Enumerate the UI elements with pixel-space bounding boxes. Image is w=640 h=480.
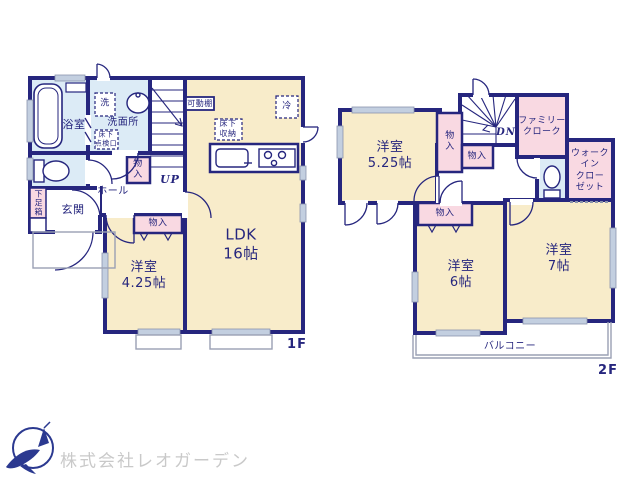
feature-label-movable-shelf: 可動棚 [187, 99, 213, 109]
room-label-bedroom-525: 洋室 5.25帖 [368, 140, 412, 173]
room-label-entrance: 玄関 [62, 203, 85, 217]
feature-label-laundry: 洗 [100, 98, 110, 109]
feature-label-fridge: 冷 [282, 101, 292, 112]
washbasin-icon [127, 93, 149, 113]
room-label-walk-in-closet: ウォーク イン クロー ゼット [571, 149, 609, 194]
floor1-label: 1F [287, 337, 307, 353]
room-label-hall: ホール [97, 186, 129, 199]
toilet-1f-icon [34, 160, 69, 182]
closet-label-hall-1f: 物 入 [133, 159, 143, 182]
closet-label-bedroom-1f: 物入 [148, 218, 167, 229]
stairs-up-label: UP [160, 173, 180, 187]
sink-icon [216, 149, 248, 167]
toilet-2f-icon [544, 166, 560, 198]
room-label-washroom: 洗面所 [107, 117, 139, 130]
closet-label-bedroom6: 物入 [435, 208, 454, 219]
floor2-label: 2F [598, 363, 618, 379]
stairs-down-label: DN [496, 127, 516, 140]
room-label-bedroom-6: 洋室 6帖 [447, 259, 474, 292]
room-label-ldk: LDK 16帖 [223, 225, 259, 263]
feature-label-shoe-box: 下足箱 [33, 190, 43, 217]
feature-label-underfloor-storage: 床下 収納 [220, 119, 237, 139]
kitchen-counter-icon [210, 144, 298, 172]
floor-plan-drawing [0, 0, 640, 480]
feature-label-underfloor-hatch: 床下 点検口 [95, 130, 118, 148]
floor-plan-image: 浴室 洗 洗面所 床下 点検口 可動棚 冷 床下 収納 UP 物 入 ホール 玄… [0, 0, 640, 480]
room-label-family-cloak: ファミリー クローク [518, 116, 566, 139]
closet-label-b-2f: 物入 [467, 151, 486, 162]
room-label-bath: 浴室 [63, 118, 86, 132]
room-label-bedroom-7: 洋室 7帖 [545, 243, 572, 276]
company-logo-icon [6, 422, 53, 474]
company-name: 株式会社レオガーデン [60, 447, 250, 472]
floor2-rooms [340, 95, 613, 333]
room-label-bedroom-425: 洋室 4.25帖 [122, 260, 166, 293]
closet-label-a-2f: 物 入 [445, 131, 455, 154]
stove-icon [259, 149, 295, 167]
room-label-balcony: バルコニー [484, 341, 536, 354]
